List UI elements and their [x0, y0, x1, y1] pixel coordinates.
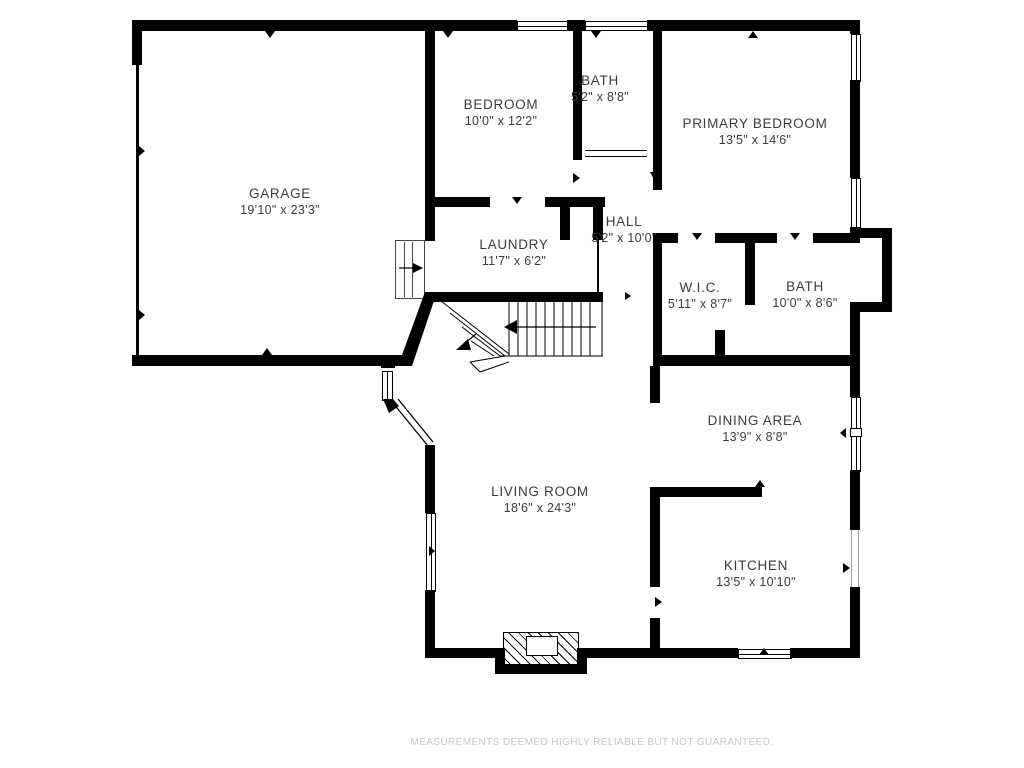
room-dims: 18'6" x 24'3" — [491, 500, 589, 517]
entry-door-diagonal — [393, 399, 433, 446]
garage-door-line — [136, 24, 139, 360]
entry-steps — [395, 240, 425, 299]
wall — [425, 445, 435, 513]
room-label-bath: BATH 5'2" x 8'8" — [571, 72, 629, 106]
wall — [545, 197, 605, 207]
room-name: LAUNDRY — [479, 236, 548, 253]
wall — [423, 292, 603, 302]
room-name: GARAGE — [240, 185, 320, 202]
room-label-dining-area: DINING AREA 13'9" x 8'8" — [708, 412, 803, 446]
room-name: PRIMARY BEDROOM — [682, 115, 827, 132]
room-label-hall: HALL 5'2" x 10'0" — [591, 213, 656, 247]
wall — [813, 233, 860, 243]
wall — [650, 618, 660, 658]
room-dims: 10'0" x 12'2" — [464, 113, 539, 130]
room-label-garage: GARAGE 19'10" x 23'3" — [240, 185, 320, 219]
wall — [715, 330, 725, 358]
room-dims: 5'2" x 10'0" — [591, 230, 656, 247]
room-name: BATH — [772, 278, 837, 295]
room-name: LIVING ROOM — [491, 483, 589, 500]
wall — [425, 31, 435, 241]
room-label-kitchen: KITCHEN 13'5" x 10'10" — [716, 557, 796, 591]
window-mullion — [850, 428, 862, 437]
room-dims: 5'2" x 8'8" — [571, 89, 629, 106]
wall — [745, 243, 755, 305]
room-label-living-room: LIVING ROOM 18'6" x 24'3" — [491, 483, 589, 517]
room-name: HALL — [591, 213, 656, 230]
wall — [495, 664, 587, 674]
window — [738, 649, 792, 659]
wall — [585, 648, 738, 658]
window — [851, 34, 861, 82]
wall — [790, 648, 860, 658]
room-name: DINING AREA — [708, 412, 803, 429]
wall — [567, 20, 585, 31]
room-dims: 13'5" x 14'6" — [682, 132, 827, 149]
window — [426, 513, 436, 592]
room-label-wic: W.I.C. 5'11" x 8'7" — [668, 279, 732, 313]
fireplace-box — [526, 636, 558, 656]
room-label-bedroom: BEDROOM 10'0" x 12'2" — [464, 96, 539, 130]
stairs — [500, 302, 603, 356]
wall — [850, 470, 860, 530]
wall — [650, 487, 660, 587]
wall — [653, 31, 662, 190]
step-line — [412, 242, 413, 297]
wall — [850, 80, 860, 178]
room-label-primary-bedroom: PRIMARY BEDROOM 13'5" x 14'6" — [682, 115, 827, 149]
wall — [647, 20, 860, 31]
step-line — [404, 242, 405, 297]
wall — [437, 20, 517, 31]
room-dims: 13'9" x 8'8" — [708, 429, 803, 446]
window — [585, 21, 649, 31]
wall — [882, 228, 892, 312]
wall — [653, 355, 860, 366]
wall — [597, 240, 599, 292]
wall — [653, 243, 662, 355]
wall — [425, 648, 500, 658]
room-label-bath2: BATH 10'0" x 8'6" — [772, 278, 837, 312]
wall — [650, 366, 660, 403]
patio-opening — [851, 530, 859, 587]
room-dims: 10'0" x 8'6" — [772, 295, 837, 312]
wall — [715, 233, 777, 243]
wall — [850, 302, 892, 312]
disclaimer-text: MEASUREMENTS DEEMED HIGHLY RELIABLE BUT … — [411, 737, 774, 748]
room-dims: 13'5" x 10'10" — [716, 574, 796, 591]
room-name: BATH — [571, 72, 629, 89]
wall — [653, 233, 678, 243]
door-threshold — [585, 150, 647, 157]
wall — [850, 20, 860, 34]
room-name: W.I.C. — [668, 279, 732, 296]
wall — [132, 20, 437, 31]
room-label-laundry: LAUNDRY 11'7" x 6'2" — [479, 236, 548, 270]
room-dims: 11'7" x 6'2" — [479, 253, 548, 270]
window — [382, 371, 393, 401]
room-dims: 19'10" x 23'3" — [240, 202, 320, 219]
room-name: BEDROOM — [464, 96, 539, 113]
wall — [132, 355, 402, 366]
window — [851, 178, 861, 229]
window — [517, 21, 569, 31]
winder-stairs — [441, 301, 509, 372]
room-name: KITCHEN — [716, 557, 796, 574]
wall — [650, 487, 762, 497]
room-dims: 5'11" x 8'7" — [668, 296, 732, 313]
floor-plan: GARAGE 19'10" x 23'3" BEDROOM 10'0" x 12… — [0, 0, 1024, 768]
stair-arrow — [456, 320, 596, 350]
wall — [425, 590, 435, 658]
wall — [560, 207, 570, 240]
wall — [435, 197, 490, 207]
